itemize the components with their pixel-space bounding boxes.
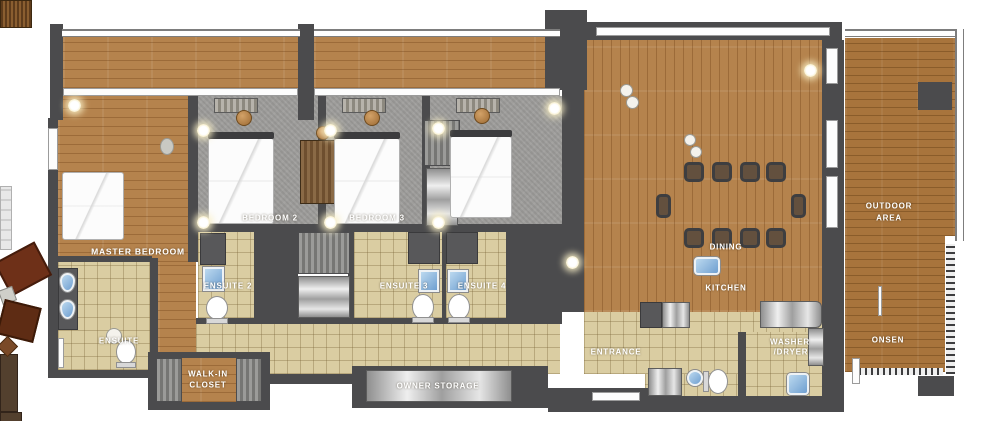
wall-light <box>566 256 579 269</box>
wall-light <box>548 102 561 115</box>
onsen-step <box>852 358 860 384</box>
sliding-door <box>808 328 824 366</box>
washer-dryer-label-line1: WASHER <box>770 339 810 348</box>
headboard <box>208 132 274 139</box>
onsen-label: ONSEN <box>872 337 904 346</box>
lounger <box>849 100 879 144</box>
window-right <box>826 120 838 168</box>
ensuite-door <box>58 338 64 368</box>
bedroom-2-bed <box>208 138 274 224</box>
toilet-tank <box>448 317 470 323</box>
bedroom-3-bed <box>334 138 400 224</box>
walkin-wardrobe <box>236 358 262 402</box>
toilet <box>708 369 728 394</box>
balcony-floor-left <box>63 37 298 88</box>
headboard <box>450 130 512 137</box>
outdoor-railing-right <box>955 29 964 241</box>
dining-chair <box>740 228 760 248</box>
window-left <box>48 128 58 170</box>
washer-dryer-label-line2: /DRYER <box>774 349 809 358</box>
entry-mat <box>0 0 32 28</box>
round-stool <box>474 108 490 124</box>
ensuite-3-label: ENSUITE 3 <box>380 283 429 292</box>
dining-chair <box>684 228 704 248</box>
window-band <box>596 27 830 36</box>
wall-segment <box>52 256 152 262</box>
entry-door <box>592 392 640 401</box>
master-desk-chair <box>160 138 174 155</box>
wall-light <box>432 122 445 135</box>
shower-unit <box>200 233 226 265</box>
dining-label: DINING <box>710 244 743 253</box>
walkin-closet-label-line1: WALK-IN <box>188 371 228 380</box>
window-band <box>63 88 298 96</box>
bedroom-4-bed <box>450 136 512 218</box>
door-leaf <box>0 28 3 56</box>
toilet-tank <box>116 362 136 368</box>
wall-segment <box>562 88 584 312</box>
wall-segment <box>298 24 314 120</box>
counter-end <box>640 302 662 328</box>
walkin-wall <box>148 402 270 410</box>
toilet-tank <box>206 318 228 324</box>
toilet <box>206 296 228 320</box>
ensuite-2-label: ENSUITE 2 <box>204 283 253 292</box>
walkin-wardrobe <box>156 358 182 402</box>
master-bed <box>62 172 124 240</box>
dining-chair <box>740 162 760 182</box>
wall-segment <box>545 10 587 90</box>
bedroom-3-desk <box>0 412 22 421</box>
master-desk <box>0 354 18 412</box>
fridge <box>760 301 822 328</box>
window-right <box>826 176 838 228</box>
dining-chair <box>712 162 732 182</box>
bench <box>342 98 386 113</box>
kitchen-label: KITCHEN <box>705 285 746 294</box>
outdoor-area-label-line2: AREA <box>876 215 902 224</box>
round-basin <box>687 370 703 386</box>
island-sink <box>694 257 720 275</box>
wall-light <box>804 64 817 77</box>
dining-chair <box>766 162 786 182</box>
round-stool <box>236 110 252 126</box>
wall-light <box>324 124 337 137</box>
wall-light <box>197 216 210 229</box>
outdoor-pillar <box>918 82 952 110</box>
wall-segment <box>738 332 746 402</box>
balcony-railing <box>314 29 560 37</box>
walkin-closet-label-line2: CLOSET <box>189 382 226 391</box>
toilet-tank <box>412 317 434 323</box>
round-stool <box>364 110 380 126</box>
dining-chair <box>656 194 671 218</box>
toilet-tank <box>703 371 709 392</box>
dining-chair <box>766 228 786 248</box>
window-right <box>826 48 838 84</box>
entry-cabinet <box>648 368 682 396</box>
side-table <box>626 96 639 109</box>
onsen-deck-edge <box>853 368 943 375</box>
wall-segment <box>50 24 63 120</box>
wall-segment <box>48 370 152 378</box>
window-band <box>314 88 560 96</box>
bench <box>214 98 258 113</box>
wall-segment <box>645 396 824 412</box>
onsen-railing <box>946 244 955 374</box>
master-bed-pillows <box>0 186 12 250</box>
floor-plan-canvas: LIVING MASTER BEDROOM BEDRO <box>0 0 1000 421</box>
wall-segment <box>254 226 298 318</box>
wall-segment <box>196 318 562 324</box>
balcony-floor-right <box>314 37 560 88</box>
bedroom-2-label: BEDROOM 2 <box>242 215 298 224</box>
owner-storage-label: OWNER STORAGE <box>397 383 480 392</box>
wall-light <box>68 99 81 112</box>
ensuite-4-label: ENSUITE 4 <box>458 283 507 292</box>
dining-chair <box>791 194 806 218</box>
bedroom-3-label: BEDROOM 3 <box>349 215 405 224</box>
headboard <box>334 132 400 139</box>
outdoor-railing-top <box>845 29 964 37</box>
ensuite-label: ENSUITE <box>99 338 139 347</box>
balcony-railing <box>62 29 300 37</box>
master-bedroom-label: MASTER BEDROOM <box>91 247 185 256</box>
entrance-label: ENTRANCE <box>591 349 642 358</box>
shower-unit <box>408 232 440 264</box>
wall-light <box>197 124 210 137</box>
dishwasher <box>662 302 690 328</box>
laundry-sink <box>787 373 809 395</box>
hall-mirror-closet <box>298 276 350 318</box>
wall-segment <box>918 376 954 396</box>
wall-light <box>432 216 445 229</box>
floor-lamp <box>690 146 702 158</box>
dining-chair <box>684 162 704 182</box>
outdoor-area-label-line1: OUTDOOR <box>866 203 913 212</box>
hall-closet <box>298 232 350 274</box>
shower-unit <box>446 232 478 264</box>
onsen-faucet <box>878 286 882 316</box>
wall-segment <box>188 88 198 262</box>
door-leaf <box>0 56 3 84</box>
wall-light <box>324 216 337 229</box>
onsen-deck-floor <box>845 236 945 372</box>
wall-segment <box>506 226 562 318</box>
floor-lamp <box>684 134 696 146</box>
